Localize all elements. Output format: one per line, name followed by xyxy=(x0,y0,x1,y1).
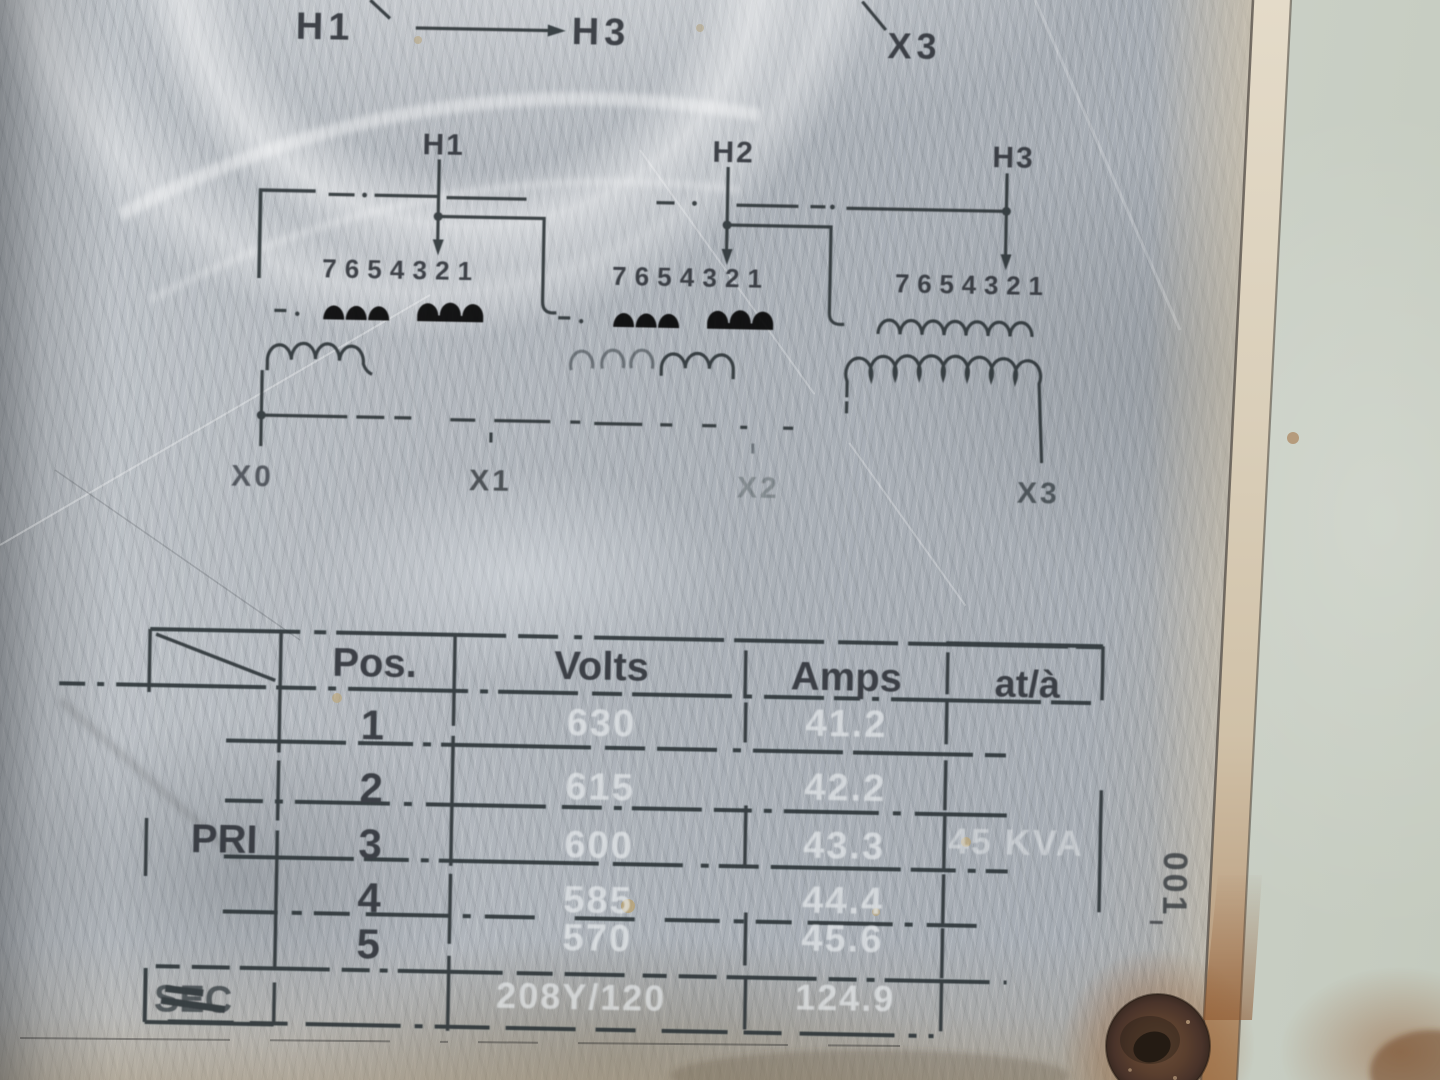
rust-features xyxy=(670,432,1440,1080)
photo-transformer-nameplate: H1 H3 X3 H1 xyxy=(0,0,1440,1080)
header-pos: Pos. xyxy=(332,641,417,687)
rust-speckle xyxy=(1128,1068,1132,1072)
sec-amps-cell: 124.9 xyxy=(795,976,896,1019)
amps-cell: 45.6 xyxy=(801,918,884,962)
winding-h1-label: H1 xyxy=(422,128,465,162)
tap-winding xyxy=(613,308,773,330)
secondary-bus-line: X0 X1 X2 X3 xyxy=(231,370,1062,511)
nameplate-artwork: H1 H3 X3 H1 xyxy=(0,0,1440,1080)
pos-cell: 3 xyxy=(358,820,382,867)
phasor-line xyxy=(862,2,887,30)
bus-dot xyxy=(692,201,697,206)
terminal-x0-label: X0 xyxy=(231,460,274,494)
kva-rating: 45 KVA xyxy=(948,820,1084,864)
phase-h2: H2 7 6 5 4 3 2 1 xyxy=(558,133,848,331)
tap-numbers: 7 6 5 4 3 2 1 xyxy=(322,253,473,286)
table-bottom-border xyxy=(168,1021,934,1036)
bus-dashes xyxy=(261,415,793,428)
scratch-line xyxy=(0,295,430,545)
terminal-x3-label: X3 xyxy=(1017,477,1060,511)
amps-cell: 43.3 xyxy=(803,825,886,869)
amps-cell: 44.4 xyxy=(802,880,885,924)
bus-dot xyxy=(830,205,835,210)
volts-cell: 570 xyxy=(562,917,632,960)
phasor-h1-label: H1 xyxy=(295,6,354,49)
tap-winding-continuous xyxy=(878,320,1032,337)
secondary-coil-3 xyxy=(845,354,1040,391)
secondary-coil-2b xyxy=(661,353,734,379)
side-label-001: 001 xyxy=(1155,851,1194,917)
pos-cell: 1 xyxy=(360,701,384,748)
tap-lead-dot xyxy=(579,319,583,323)
table-corner-diagonal xyxy=(155,634,276,680)
rust-speckle xyxy=(1186,1020,1190,1024)
rust-speckle xyxy=(1173,1076,1177,1080)
volts-cell: 615 xyxy=(565,766,635,809)
phasor-arrow-line xyxy=(416,28,552,31)
tap-numbers: 7 6 5 4 3 2 1 xyxy=(895,268,1044,301)
pos-cell: 4 xyxy=(357,874,382,921)
table-left-border xyxy=(145,629,150,876)
stain-spot xyxy=(696,24,704,32)
pos-cell: 5 xyxy=(356,920,380,967)
worn-coil-arcs xyxy=(571,349,654,372)
header-volts: Volts xyxy=(554,644,650,690)
volts-cell: 585 xyxy=(563,879,633,922)
h1-lead-line xyxy=(438,159,440,241)
scratch-line xyxy=(20,1038,900,1046)
h2-lead-line xyxy=(727,167,729,251)
phase-h3: H3 7 6 5 4 3 2 1 xyxy=(878,139,1046,337)
x0-lead-line xyxy=(261,370,262,446)
secondary-coil-2a xyxy=(571,349,654,372)
volts-cell: 600 xyxy=(564,824,634,867)
phasor-line xyxy=(370,0,390,18)
pos-cell: 2 xyxy=(359,764,383,811)
phasor-diagram: H1 H3 X3 xyxy=(295,0,942,67)
group-label-pri: PRI xyxy=(190,817,258,862)
table-column-line xyxy=(274,633,282,1026)
winding-h2-label: H2 xyxy=(712,136,755,170)
tap-lead-dot xyxy=(295,312,299,316)
winding-h3-label: H3 xyxy=(992,141,1035,175)
h3-junction-dot xyxy=(1002,207,1011,216)
scratch-line xyxy=(640,150,990,640)
amps-cell: 41.2 xyxy=(805,703,888,747)
header-ata: at/à xyxy=(994,663,1061,706)
secondary-windings xyxy=(266,343,1044,463)
tap-numbers: 7 6 5 4 3 2 1 xyxy=(612,261,763,294)
stain-spot xyxy=(332,693,342,703)
scratch-line xyxy=(55,470,300,640)
stain-spot xyxy=(414,36,422,44)
phasor-x3-label: X3 xyxy=(887,25,942,67)
header-amps: Amps xyxy=(790,654,902,700)
table-column-line xyxy=(739,650,752,1029)
rust-spot xyxy=(1287,432,1299,444)
h3-arrowhead xyxy=(1000,254,1011,270)
sec-volts-cell: 208Y/120 xyxy=(496,975,667,1019)
bus-dot xyxy=(362,193,367,198)
terminal-x2-label: X2 xyxy=(737,471,780,505)
table-right-border xyxy=(1098,646,1104,912)
table-column-line xyxy=(941,652,948,1031)
bottom-grime xyxy=(670,1050,1070,1080)
phasor-arrowhead xyxy=(548,25,566,37)
terminal-x1-label: X1 xyxy=(469,464,512,498)
amps-cell: 42.2 xyxy=(804,767,887,811)
x3-lead-line xyxy=(1038,383,1044,463)
phasor-h3-label: H3 xyxy=(571,11,630,54)
h1-arrowhead xyxy=(432,239,443,255)
volts-cell: 630 xyxy=(566,702,636,745)
side-part-number: 001 xyxy=(1150,851,1194,923)
